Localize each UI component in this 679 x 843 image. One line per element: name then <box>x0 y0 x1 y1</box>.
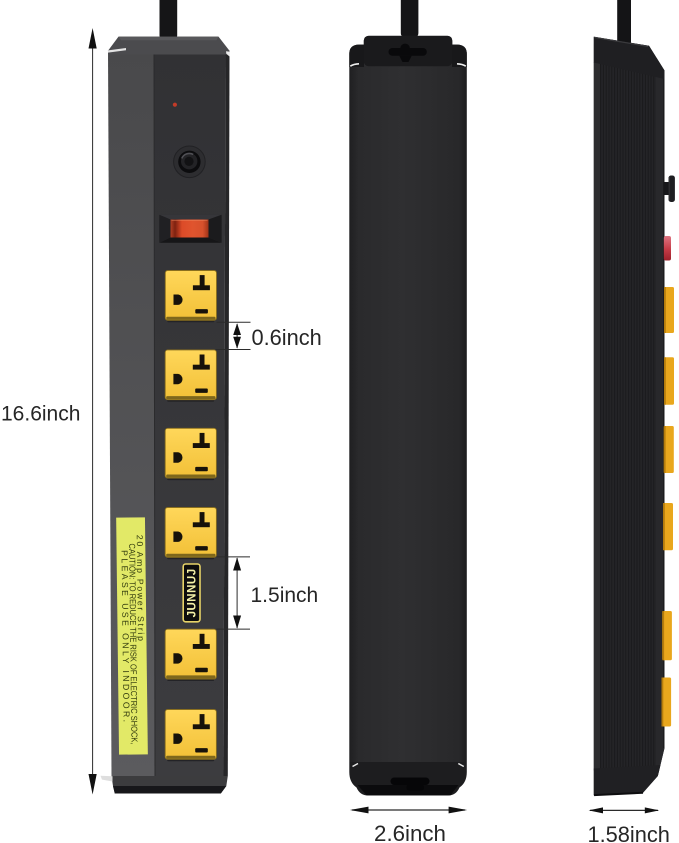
svg-text:16.6inch: 16.6inch <box>1 403 80 426</box>
svg-text:PLEASE USE ONLY INDOOR.: PLEASE USE ONLY INDOOR. <box>120 550 132 722</box>
svg-text:1.5inch: 1.5inch <box>251 584 319 607</box>
svg-text:2.6inch: 2.6inch <box>374 821 446 843</box>
svg-text:1.58inch: 1.58inch <box>588 822 670 843</box>
svg-text:JUNNUJ: JUNNUJ <box>186 568 198 617</box>
svg-text:0.6inch: 0.6inch <box>252 325 322 350</box>
